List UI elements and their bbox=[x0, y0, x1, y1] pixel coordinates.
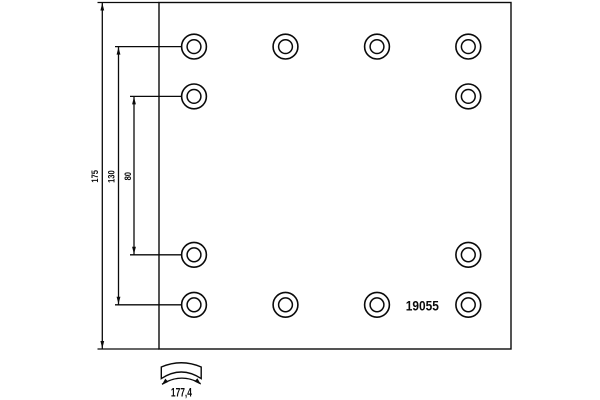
svg-text:175: 175 bbox=[89, 170, 100, 183]
svg-text:80: 80 bbox=[122, 172, 133, 181]
svg-text:19055: 19055 bbox=[406, 298, 439, 314]
svg-text:177,4: 177,4 bbox=[171, 387, 192, 400]
svg-text:130: 130 bbox=[106, 170, 117, 183]
